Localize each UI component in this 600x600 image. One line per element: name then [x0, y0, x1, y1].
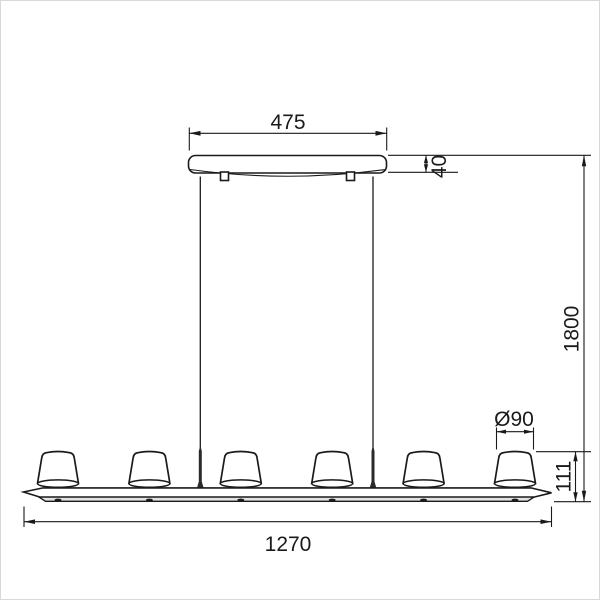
cord-grip-left: [221, 172, 229, 181]
suspension-cable-right: [369, 177, 376, 489]
lamp-shade-1: [38, 452, 79, 488]
bar-underside: [39, 497, 534, 501]
dimension-canopy-height: 40: [388, 155, 591, 178]
dimension-shade-diameter: Ø90: [494, 408, 534, 450]
ceiling-canopy: [189, 156, 387, 181]
suspension-cable-left: [197, 177, 204, 489]
dimension-fixture-length: 1270: [24, 507, 552, 557]
lamp-shade-5: [403, 452, 444, 488]
dim-label-shade-height: 111: [553, 461, 576, 493]
lamp-shade-2: [129, 452, 170, 488]
lamp-shade-4: [312, 452, 353, 488]
dim-label-canopy-width: 475: [270, 111, 305, 134]
lamp-shade-3: [220, 452, 261, 488]
dimension-drawing: 475 40 1800 Ø90 111: [0, 0, 600, 600]
dim-label-suspension-drop: 1800: [561, 306, 584, 353]
dim-label-fixture-length: 1270: [265, 533, 312, 556]
pendant-light-diagram: 475 40 1800 Ø90 111: [0, 0, 600, 600]
cord-grip-right: [347, 172, 355, 181]
fixture-bar: [24, 488, 552, 502]
dimension-suspension-drop: 1800: [561, 155, 587, 501]
dim-label-shade-diameter: Ø90: [494, 408, 534, 431]
dimension-canopy-width: 475: [189, 111, 386, 151]
dim-label-canopy-height: 40: [428, 155, 451, 178]
lamp-shade-6: [495, 452, 536, 488]
